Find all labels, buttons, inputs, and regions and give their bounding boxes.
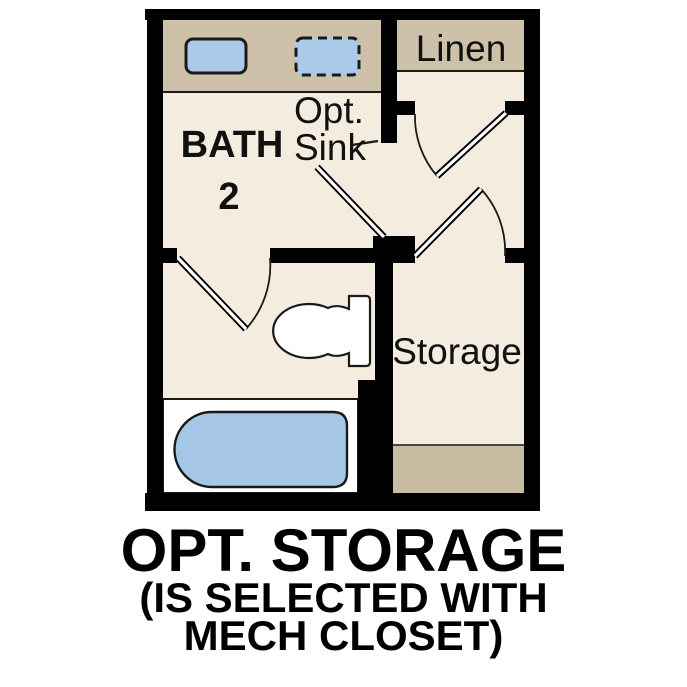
bathtub-icon xyxy=(175,412,347,487)
wall-linen-jamb-left xyxy=(397,101,415,115)
caption-title: OPT. STORAGE xyxy=(0,523,687,579)
storage-shelf xyxy=(393,445,524,493)
optional-sink-icon xyxy=(296,38,359,75)
plan-caption: OPT. STORAGE (IS SELECTED WITH MECH CLOS… xyxy=(0,523,687,655)
opt-sink-label-line2: Sink xyxy=(294,127,366,168)
bath-room-label-line2: 2 xyxy=(218,176,239,218)
floor-plan-drawing: BATH 2 Opt. Sink Linen Storage xyxy=(0,0,687,520)
opt-sink-label-line1: Opt. xyxy=(294,90,364,131)
floor-plan-page: BATH 2 Opt. Sink Linen Storage OPT. STOR… xyxy=(0,0,687,687)
wall-bath-south xyxy=(270,248,373,263)
sink-icon xyxy=(186,39,246,73)
wall-bottom xyxy=(145,493,540,511)
wall-bath-linen-divider xyxy=(381,19,397,143)
linen-room-label: Linen xyxy=(416,28,507,69)
wall-hall-cross xyxy=(373,236,415,263)
wall-bath-entry-jamb xyxy=(163,248,177,263)
wall-storage-left-upper xyxy=(375,263,393,380)
wall-right xyxy=(524,9,540,511)
caption-subtitle-line2: MECH CLOSET) xyxy=(0,617,687,655)
wall-left xyxy=(147,9,163,511)
wall-storage-left-lower xyxy=(358,380,393,493)
wall-storage-jamb-right xyxy=(505,248,524,263)
wall-top xyxy=(145,9,540,20)
storage-room-label: Storage xyxy=(392,331,522,372)
bath-room-label-line1: BATH xyxy=(181,124,284,166)
wall-linen-jamb-right xyxy=(505,101,524,115)
